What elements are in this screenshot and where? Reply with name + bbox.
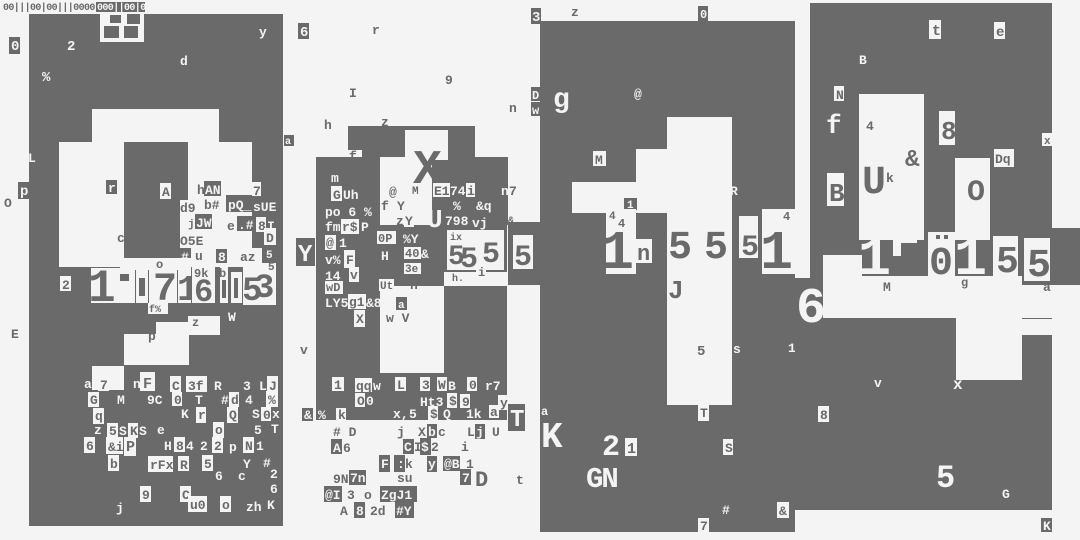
svg-text:8: 8 bbox=[820, 408, 828, 423]
svg-text:9: 9 bbox=[142, 488, 150, 503]
svg-text:&: & bbox=[421, 247, 429, 262]
svg-text:4: 4 bbox=[618, 217, 625, 231]
svg-text:2: 2 bbox=[214, 439, 222, 454]
svg-text:@B: @B bbox=[444, 457, 460, 472]
svg-text:z: z bbox=[381, 115, 389, 130]
svg-text:k: k bbox=[405, 457, 413, 472]
svg-text:a: a bbox=[398, 300, 405, 312]
svg-text:a: a bbox=[490, 405, 498, 420]
svg-text:8: 8 bbox=[176, 439, 184, 454]
svg-text:@: @ bbox=[326, 236, 334, 251]
svg-text:5: 5 bbox=[996, 241, 1019, 284]
svg-text:U: U bbox=[862, 161, 886, 206]
svg-text:G: G bbox=[90, 393, 98, 408]
svg-text:K: K bbox=[267, 498, 275, 513]
svg-text:8: 8 bbox=[941, 117, 957, 147]
svg-text:5: 5 bbox=[741, 231, 759, 265]
svg-text:g: g bbox=[553, 85, 570, 116]
svg-text:LY5: LY5 bbox=[325, 296, 349, 311]
svg-text:K: K bbox=[130, 424, 138, 439]
svg-text:po 6 %: po 6 % bbox=[325, 205, 372, 220]
svg-text:2: 2 bbox=[62, 278, 70, 293]
svg-text:R: R bbox=[730, 184, 738, 199]
svg-text:sUE: sUE bbox=[253, 200, 277, 215]
svg-text:74: 74 bbox=[450, 184, 466, 199]
svg-text:7: 7 bbox=[509, 184, 517, 199]
svg-text:x: x bbox=[272, 407, 280, 422]
svg-text:3: 3 bbox=[532, 10, 540, 26]
svg-text:JW: JW bbox=[196, 216, 212, 231]
svg-text:L: L bbox=[397, 378, 405, 393]
svg-text:j: j bbox=[476, 425, 484, 440]
svg-text:2d: 2d bbox=[370, 504, 386, 519]
svg-text:5: 5 bbox=[268, 262, 275, 274]
svg-text:0P: 0P bbox=[378, 232, 392, 246]
svg-text:8: 8 bbox=[356, 504, 364, 519]
svg-text:5: 5 bbox=[668, 226, 692, 271]
svg-text:P: P bbox=[126, 439, 135, 456]
svg-text:M: M bbox=[412, 186, 419, 198]
svg-text:2: 2 bbox=[67, 39, 75, 55]
svg-text:z: z bbox=[396, 214, 404, 229]
svg-text:W: W bbox=[438, 378, 446, 393]
svg-text:z: z bbox=[192, 316, 199, 330]
svg-text:4: 4 bbox=[245, 393, 253, 408]
svg-text:e: e bbox=[157, 423, 165, 438]
svg-text:N: N bbox=[245, 439, 253, 454]
svg-text:S: S bbox=[139, 424, 147, 439]
svg-text:S: S bbox=[119, 424, 127, 439]
svg-text:9N: 9N bbox=[333, 472, 349, 487]
svg-text:2: 2 bbox=[270, 467, 278, 482]
svg-text:g: g bbox=[961, 276, 968, 290]
svg-text:j: j bbox=[116, 501, 124, 516]
svg-text:&: & bbox=[779, 504, 787, 519]
svg-text:r: r bbox=[108, 181, 116, 196]
svg-text:r$: r$ bbox=[342, 220, 358, 235]
svg-text:i: i bbox=[467, 184, 475, 199]
svg-text:x: x bbox=[1044, 136, 1051, 148]
svg-text:2: 2 bbox=[200, 439, 208, 454]
svg-text:&i: &i bbox=[108, 440, 124, 455]
svg-text:5: 5 bbox=[409, 407, 417, 422]
svg-text:D: D bbox=[475, 468, 488, 493]
svg-text:H: H bbox=[381, 249, 389, 264]
svg-text:$: $ bbox=[430, 407, 438, 422]
svg-text:000||00|0: 000||00|0 bbox=[97, 2, 146, 14]
svg-text:2: 2 bbox=[431, 440, 439, 455]
svg-text:1: 1 bbox=[88, 263, 116, 315]
svg-text:w: w bbox=[373, 379, 381, 394]
svg-text:3: 3 bbox=[347, 488, 355, 503]
svg-text:&q: &q bbox=[476, 199, 492, 214]
svg-text:L: L bbox=[259, 379, 267, 394]
svg-text:u: u bbox=[195, 249, 203, 264]
svg-text:U: U bbox=[427, 205, 443, 235]
svg-text:e: e bbox=[227, 219, 235, 234]
svg-text:4: 4 bbox=[186, 439, 194, 454]
svg-text:n: n bbox=[509, 101, 517, 116]
svg-text:@: @ bbox=[634, 87, 642, 102]
svg-text:k: k bbox=[886, 171, 894, 186]
svg-text:wD: wD bbox=[326, 281, 340, 295]
svg-text:6: 6 bbox=[300, 25, 308, 41]
svg-text:Uh: Uh bbox=[343, 188, 359, 203]
svg-text:798: 798 bbox=[445, 214, 469, 229]
svg-text:O: O bbox=[967, 176, 985, 210]
svg-text:40: 40 bbox=[405, 247, 419, 261]
svg-text:R: R bbox=[180, 458, 188, 473]
svg-text:j: j bbox=[188, 219, 195, 231]
svg-text:T: T bbox=[700, 406, 708, 421]
svg-text:pQ_: pQ_ bbox=[228, 198, 252, 213]
svg-text:&: & bbox=[508, 216, 514, 227]
svg-text:T: T bbox=[271, 422, 279, 437]
svg-text:J: J bbox=[668, 276, 684, 306]
svg-text:1: 1 bbox=[339, 236, 347, 251]
svg-text:a: a bbox=[84, 377, 92, 392]
svg-text:1: 1 bbox=[627, 441, 636, 458]
svg-text:#Y: #Y bbox=[396, 504, 412, 519]
svg-text:b: b bbox=[219, 267, 226, 281]
svg-text:3: 3 bbox=[254, 270, 274, 308]
svg-text:7: 7 bbox=[100, 378, 108, 393]
svg-text:W: W bbox=[228, 310, 236, 325]
svg-text:%Y: %Y bbox=[403, 232, 419, 247]
svg-text:Y: Y bbox=[405, 214, 413, 229]
svg-text:0: 0 bbox=[366, 394, 374, 409]
svg-text:J: J bbox=[756, 292, 764, 307]
svg-text:8: 8 bbox=[218, 250, 226, 265]
svg-text:0: 0 bbox=[929, 242, 953, 287]
svg-text:y: y bbox=[500, 396, 508, 411]
svg-text:5: 5 bbox=[266, 250, 273, 262]
svg-text:x,: x, bbox=[393, 407, 409, 422]
svg-text:X: X bbox=[356, 312, 364, 327]
svg-text:H: H bbox=[164, 439, 172, 454]
svg-text:5: 5 bbox=[254, 423, 262, 438]
svg-text:N: N bbox=[836, 88, 844, 103]
svg-text:7: 7 bbox=[253, 184, 261, 199]
svg-text:z: z bbox=[94, 423, 102, 438]
svg-text:0: 0 bbox=[700, 8, 707, 22]
svg-text:2: 2 bbox=[602, 431, 620, 465]
svg-text:p: p bbox=[20, 184, 28, 200]
svg-text:b: b bbox=[110, 457, 118, 472]
svg-text:K: K bbox=[541, 417, 563, 458]
svg-text:w V: w V bbox=[386, 311, 410, 326]
svg-text:%: % bbox=[318, 408, 326, 423]
svg-text:9C: 9C bbox=[147, 393, 163, 408]
svg-text:.#: .# bbox=[238, 218, 254, 233]
svg-text:A: A bbox=[333, 441, 341, 456]
svg-text:6: 6 bbox=[86, 439, 94, 454]
svg-text:A: A bbox=[340, 504, 348, 519]
svg-text:b: b bbox=[428, 425, 436, 440]
svg-text:i: i bbox=[461, 440, 469, 455]
svg-text:3e: 3e bbox=[405, 264, 419, 276]
svg-text:c: c bbox=[238, 469, 246, 484]
svg-text:GN: GN bbox=[586, 463, 617, 496]
svg-text:q: q bbox=[95, 409, 103, 424]
svg-text:%: % bbox=[42, 70, 51, 86]
svg-text:M: M bbox=[883, 280, 891, 295]
svg-text:h: h bbox=[197, 183, 205, 198]
svg-text:v: v bbox=[300, 343, 308, 358]
svg-text:O5E: O5E bbox=[180, 234, 204, 249]
svg-text:z: z bbox=[571, 5, 579, 20]
svg-text:a: a bbox=[285, 137, 291, 148]
svg-text:o: o bbox=[222, 498, 230, 513]
svg-text:C: C bbox=[172, 379, 180, 394]
svg-text:6: 6 bbox=[215, 469, 223, 484]
svg-text:O: O bbox=[357, 394, 365, 409]
svg-text:X: X bbox=[418, 425, 426, 440]
svg-text:&: & bbox=[905, 147, 920, 174]
svg-text:r7: r7 bbox=[485, 379, 501, 394]
svg-text:D: D bbox=[266, 231, 274, 246]
svg-text:L: L bbox=[28, 151, 36, 166]
svg-text:5: 5 bbox=[109, 424, 117, 439]
svg-text:1: 1 bbox=[760, 222, 793, 285]
svg-text:1: 1 bbox=[601, 222, 634, 285]
svg-text:M: M bbox=[595, 153, 603, 168]
svg-text:h: h bbox=[324, 118, 332, 133]
svg-text:K: K bbox=[181, 407, 189, 422]
svg-text:v: v bbox=[350, 268, 358, 283]
svg-text:G: G bbox=[1002, 487, 1010, 502]
svg-text:#: # bbox=[722, 503, 730, 518]
svg-text:v: v bbox=[874, 376, 882, 391]
svg-text:az: az bbox=[240, 250, 256, 265]
svg-text:m: m bbox=[331, 171, 339, 186]
svg-text:0: 0 bbox=[263, 408, 271, 423]
svg-text:5: 5 bbox=[697, 344, 705, 360]
svg-text:k: k bbox=[338, 408, 346, 423]
svg-text:0: 0 bbox=[174, 393, 182, 408]
svg-text:qq: qq bbox=[356, 379, 372, 394]
svg-text:3f: 3f bbox=[188, 379, 204, 394]
svg-text:7: 7 bbox=[462, 471, 470, 486]
svg-text:G: G bbox=[333, 188, 341, 203]
svg-text:%: % bbox=[453, 199, 461, 214]
svg-text:0: 0 bbox=[11, 39, 19, 55]
svg-text:U: U bbox=[492, 425, 500, 440]
svg-text:%: % bbox=[268, 393, 276, 408]
svg-text:$: $ bbox=[421, 440, 429, 455]
svg-text:o: o bbox=[364, 488, 372, 503]
svg-text:Y: Y bbox=[298, 242, 313, 269]
svg-text:5: 5 bbox=[460, 243, 478, 277]
svg-text:j: j bbox=[397, 425, 405, 440]
svg-text:v%: v% bbox=[325, 253, 341, 268]
svg-text:6: 6 bbox=[194, 274, 213, 311]
svg-text:y: y bbox=[259, 25, 267, 40]
svg-text:s: s bbox=[733, 342, 741, 357]
svg-text:F: F bbox=[143, 376, 152, 393]
svg-text:T: T bbox=[510, 407, 524, 434]
svg-text:o: o bbox=[215, 423, 223, 438]
svg-text:rFx: rFx bbox=[150, 458, 174, 473]
svg-text:&: & bbox=[304, 408, 312, 423]
svg-text:@I: @I bbox=[325, 488, 341, 503]
svg-text:r: r bbox=[198, 408, 206, 423]
svg-text:D: D bbox=[532, 89, 539, 103]
svg-text:B: B bbox=[829, 179, 845, 209]
svg-text:S: S bbox=[252, 407, 260, 422]
svg-text:O: O bbox=[4, 196, 12, 211]
svg-text:B: B bbox=[448, 379, 456, 394]
svg-text:0: 0 bbox=[469, 378, 477, 393]
svg-text:5: 5 bbox=[936, 460, 955, 497]
svg-text:f: f bbox=[381, 199, 389, 214]
svg-text:1: 1 bbox=[256, 439, 264, 454]
svg-text:7n: 7n bbox=[350, 471, 366, 486]
svg-text:vj: vj bbox=[472, 216, 488, 231]
svg-text:4: 4 bbox=[783, 210, 790, 224]
svg-text:Dq: Dq bbox=[995, 152, 1011, 167]
svg-text:6: 6 bbox=[270, 482, 278, 497]
svg-text:I: I bbox=[349, 86, 357, 101]
svg-text:n: n bbox=[501, 184, 509, 199]
svg-text:L: L bbox=[467, 425, 475, 440]
svg-text:y: y bbox=[428, 457, 436, 472]
svg-text:d9: d9 bbox=[180, 201, 196, 216]
svg-text:t: t bbox=[372, 263, 380, 278]
svg-text:f: f bbox=[349, 149, 357, 164]
svg-text:9: 9 bbox=[445, 73, 453, 88]
svg-text:h.: h. bbox=[452, 273, 464, 285]
svg-text:P: P bbox=[361, 220, 369, 235]
svg-text:#: # bbox=[221, 393, 229, 408]
svg-text:00|||00|00|||0000: 00|||00|00|||0000 bbox=[3, 2, 95, 14]
svg-text:r: r bbox=[372, 23, 380, 38]
svg-text:g1: g1 bbox=[349, 295, 365, 310]
svg-text:M: M bbox=[117, 393, 125, 408]
svg-text:e: e bbox=[996, 25, 1004, 41]
svg-text:p: p bbox=[229, 440, 237, 455]
svg-text:T: T bbox=[195, 393, 203, 408]
svg-text:c: c bbox=[117, 231, 125, 246]
svg-text:F: F bbox=[346, 253, 354, 268]
svg-text:d: d bbox=[180, 54, 188, 69]
svg-text:w: w bbox=[532, 104, 540, 118]
svg-text:t: t bbox=[516, 473, 524, 488]
svg-text:AN: AN bbox=[205, 183, 221, 198]
svg-text:F: F bbox=[381, 457, 389, 472]
svg-text:4: 4 bbox=[866, 119, 874, 134]
svg-text:5: 5 bbox=[204, 457, 212, 472]
svg-text:su: su bbox=[397, 471, 413, 486]
svg-text:a: a bbox=[1043, 280, 1051, 295]
svg-text:# D: # D bbox=[333, 425, 357, 440]
svg-text:4: 4 bbox=[609, 211, 616, 223]
svg-text:6: 6 bbox=[343, 441, 351, 456]
svg-text:i: i bbox=[478, 266, 485, 280]
svg-text:@: @ bbox=[389, 185, 397, 200]
svg-text:3: 3 bbox=[422, 378, 430, 393]
svg-text:S: S bbox=[725, 441, 733, 456]
svg-text:1: 1 bbox=[954, 228, 987, 291]
svg-text:1k: 1k bbox=[466, 407, 482, 422]
svg-text:u0: u0 bbox=[190, 498, 206, 513]
svg-text:b#: b# bbox=[204, 198, 220, 213]
svg-text:1: 1 bbox=[788, 341, 796, 356]
svg-text:5: 5 bbox=[514, 241, 532, 275]
svg-text:f%: f% bbox=[149, 304, 161, 316]
svg-text:c: c bbox=[438, 425, 446, 440]
svg-text:B: B bbox=[859, 53, 867, 68]
svg-text:E: E bbox=[11, 327, 19, 342]
svg-text:E1: E1 bbox=[434, 184, 450, 199]
svg-text:6: 6 bbox=[796, 281, 826, 338]
svg-text:R: R bbox=[214, 379, 222, 394]
svg-text:x: x bbox=[953, 376, 963, 394]
svg-text:&8: &8 bbox=[366, 296, 382, 311]
svg-text:f: f bbox=[826, 111, 842, 141]
svg-text:A: A bbox=[162, 185, 170, 200]
svg-text:K: K bbox=[1043, 519, 1051, 534]
svg-text:w: w bbox=[691, 197, 699, 211]
svg-text:fm: fm bbox=[325, 220, 341, 235]
svg-text:Y: Y bbox=[397, 199, 405, 214]
svg-text:ZgJ1: ZgJ1 bbox=[381, 488, 412, 503]
svg-text:7: 7 bbox=[700, 519, 708, 534]
svg-text:n: n bbox=[637, 242, 650, 267]
svg-text:Q: Q bbox=[443, 407, 451, 422]
svg-text:p: p bbox=[148, 329, 156, 344]
svg-text:C: C bbox=[404, 440, 412, 455]
svg-text:3: 3 bbox=[243, 379, 251, 394]
svg-text:zh: zh bbox=[246, 500, 262, 515]
svg-text:Q: Q bbox=[229, 408, 237, 423]
svg-text:1: 1 bbox=[334, 378, 342, 393]
svg-text::: : bbox=[397, 457, 405, 472]
svg-text:Ut: Ut bbox=[380, 281, 393, 293]
svg-text:5: 5 bbox=[704, 226, 728, 271]
svg-text:n: n bbox=[133, 377, 141, 392]
svg-text:d: d bbox=[231, 393, 239, 408]
svg-text:t: t bbox=[932, 23, 941, 40]
svg-text:h: h bbox=[410, 278, 418, 293]
